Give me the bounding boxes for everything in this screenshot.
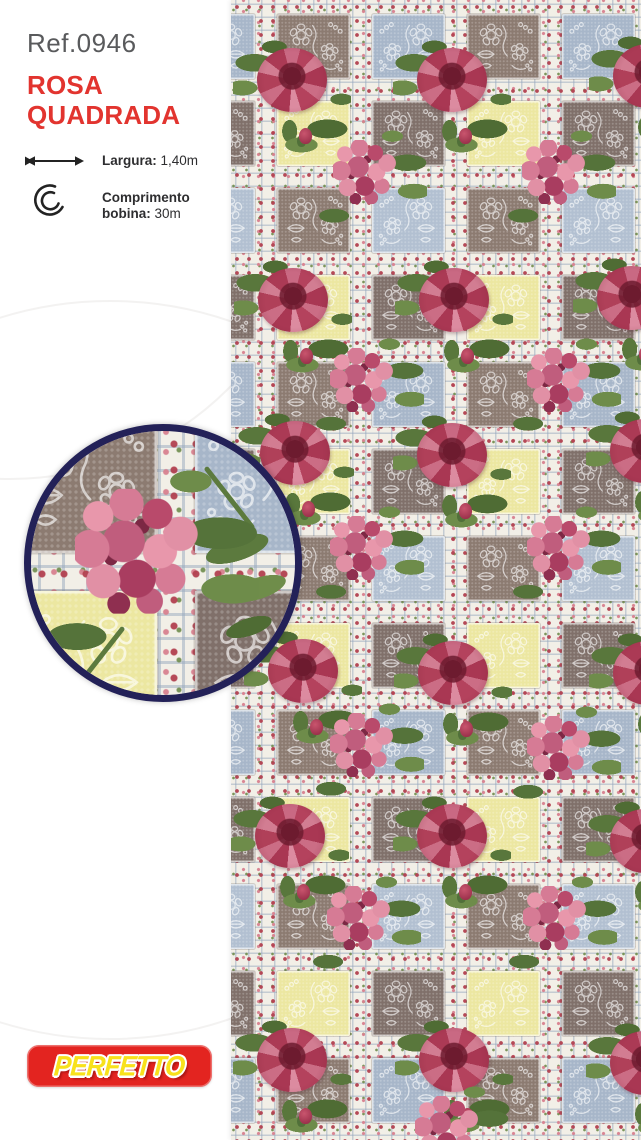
hydrangea-motif bbox=[324, 510, 416, 596]
hydrangea-motif bbox=[409, 1090, 501, 1140]
product-title: ROSA QUADRADA bbox=[27, 70, 180, 130]
reference-number: Ref.0946 bbox=[27, 28, 137, 59]
spec-width-label: Largura: bbox=[102, 153, 157, 168]
spec-width: Largura: 1,40m bbox=[102, 153, 198, 169]
hydrangea-motif bbox=[327, 134, 419, 220]
spec-width-value: 1,40m bbox=[161, 153, 199, 168]
product-title-line1: ROSA bbox=[27, 70, 180, 100]
spec-roll-value: 30m bbox=[155, 206, 181, 221]
width-arrow-icon bbox=[25, 152, 85, 170]
hydrangea-motif bbox=[521, 710, 613, 796]
rose-motif bbox=[233, 1020, 351, 1134]
hydrangea-motif bbox=[516, 134, 608, 220]
zoom-detail-circle bbox=[24, 424, 302, 702]
hydrangea-motif bbox=[321, 880, 413, 966]
hydrangea-motif bbox=[521, 510, 613, 596]
detail-hydrangea-motif bbox=[63, 477, 242, 645]
spec-roll-label-line2: bobina: bbox=[102, 206, 151, 221]
product-title-line2: QUADRADA bbox=[27, 100, 180, 130]
spec-roll-length: Comprimento bobina: 30m bbox=[102, 190, 190, 222]
hydrangea-motif bbox=[324, 342, 416, 428]
hydrangea-motif bbox=[324, 707, 416, 793]
fabric-cell bbox=[231, 188, 255, 253]
roll-icon bbox=[31, 182, 67, 220]
hydrangea-motif bbox=[521, 342, 613, 428]
rose-motif bbox=[586, 1023, 641, 1137]
brand-logo: PERFETTO bbox=[27, 1045, 212, 1087]
hydrangea-motif bbox=[517, 880, 609, 966]
spec-roll-label-line1: Comprimento bbox=[102, 190, 190, 205]
brand-logo-text: PERFETTO bbox=[53, 1049, 186, 1082]
catalog-page: Ref.0946 ROSA QUADRADA Largura: 1,40m Co… bbox=[0, 0, 641, 1140]
